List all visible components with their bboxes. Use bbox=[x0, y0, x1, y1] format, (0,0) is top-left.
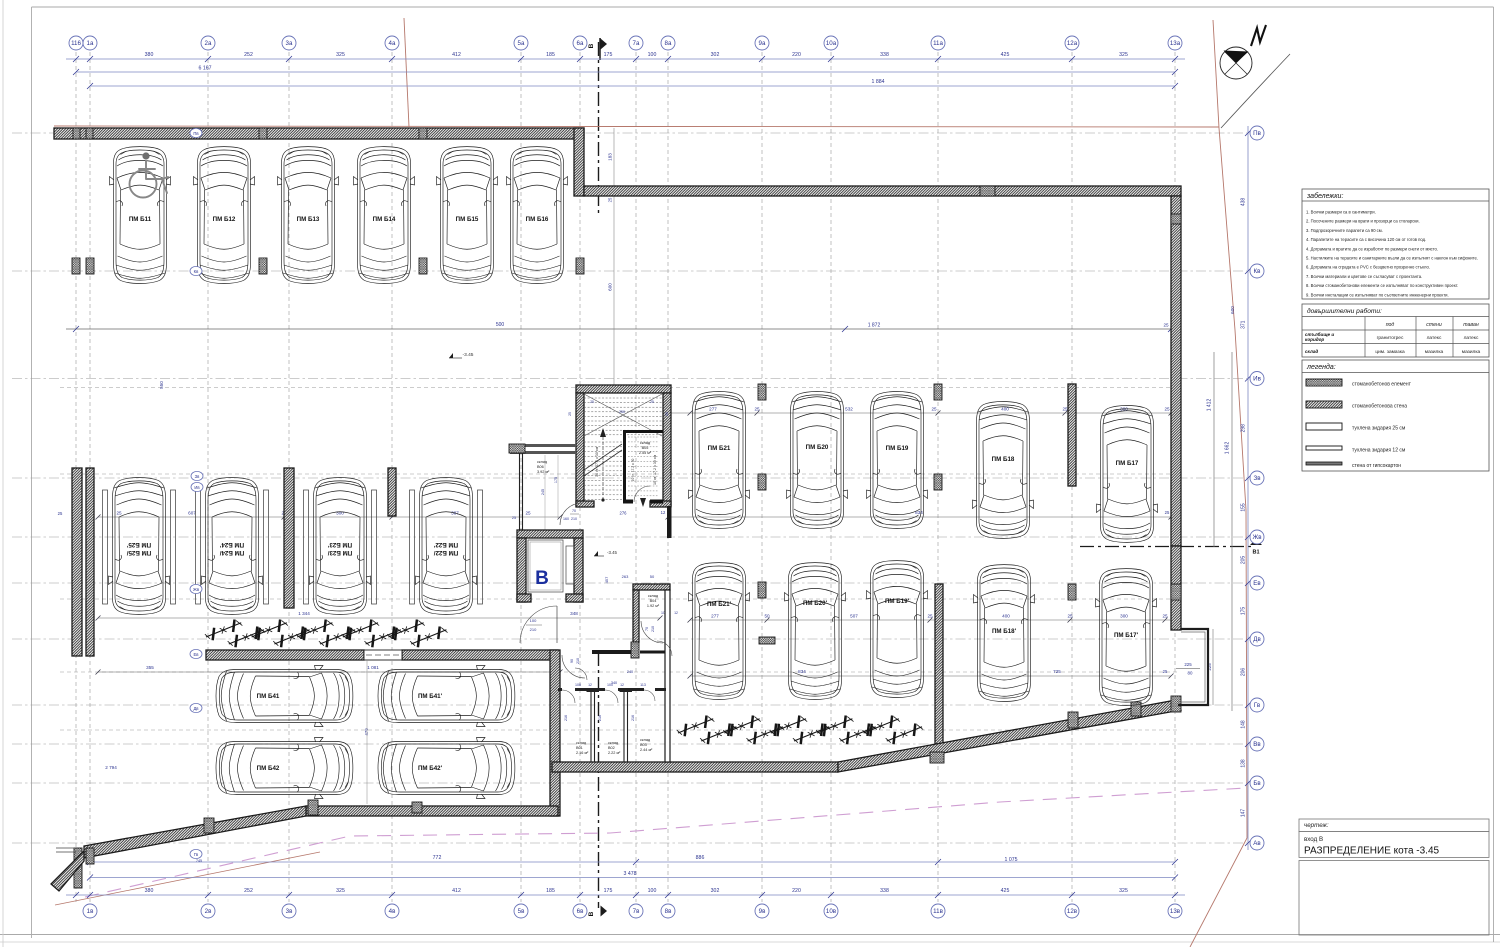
svg-text:ПМ Б17': ПМ Б17' bbox=[1114, 632, 1139, 639]
svg-text:252: 252 bbox=[244, 888, 253, 894]
svg-text:25: 25 bbox=[525, 511, 531, 516]
svg-text:Дв: Дв bbox=[1253, 636, 1261, 643]
svg-text:70: 70 bbox=[645, 627, 649, 631]
svg-text:ПМ Б25/: ПМ Б25/ bbox=[127, 549, 152, 556]
svg-text:210: 210 bbox=[571, 517, 577, 521]
svg-text:ПМ Б17: ПМ Б17 bbox=[1116, 460, 1139, 467]
svg-text:479: 479 bbox=[364, 728, 369, 736]
svg-text:412: 412 bbox=[452, 52, 461, 58]
svg-text:2 794: 2 794 bbox=[105, 765, 117, 770]
svg-text:7в: 7в bbox=[633, 908, 640, 915]
svg-text:4. Парапетите на терасите са с: 4. Парапетите на терасите са с височина … bbox=[1306, 237, 1426, 242]
svg-text:6. Дограмата на сградата е PVC: 6. Дограмата на сградата е PVC с безцвет… bbox=[1306, 265, 1430, 270]
svg-text:2.44 м²: 2.44 м² bbox=[640, 748, 653, 752]
svg-text:25: 25 bbox=[931, 407, 937, 412]
svg-text:220: 220 bbox=[792, 52, 801, 58]
svg-text:вход В: вход В bbox=[1304, 836, 1323, 843]
svg-text:латекс: латекс bbox=[1464, 336, 1479, 341]
svg-text:2. Посочените размери на врати: 2. Посочените размери на врати и прозорц… bbox=[1306, 219, 1420, 224]
svg-text:Кв: Кв bbox=[1254, 268, 1262, 275]
svg-text:3.92 м²: 3.92 м² bbox=[537, 470, 550, 474]
svg-text:210: 210 bbox=[576, 658, 580, 664]
svg-text:склад: склад bbox=[576, 741, 587, 745]
svg-text:600: 600 bbox=[1230, 306, 1235, 314]
svg-text:13в: 13в bbox=[1170, 908, 1181, 915]
svg-text:1.92 м²: 1.92 м² bbox=[647, 604, 660, 608]
svg-text:175: 175 bbox=[554, 477, 558, 483]
svg-text:ПМ Б24': ПМ Б24' bbox=[219, 541, 244, 548]
svg-text:ПМ Б16: ПМ Б16 bbox=[526, 216, 549, 223]
svg-text:607: 607 bbox=[188, 511, 196, 516]
svg-text:1 344: 1 344 bbox=[298, 611, 310, 616]
svg-text:325: 325 bbox=[1119, 52, 1128, 58]
svg-text:10 ст. 17.2 х 30: 10 ст. 17.2 х 30 bbox=[631, 458, 635, 481]
svg-text:ПМ Б19': ПМ Б19' bbox=[885, 598, 910, 605]
svg-text:склад: склад bbox=[1305, 349, 1318, 354]
svg-text:438: 438 bbox=[1241, 198, 1247, 207]
svg-text:ПМ Б12: ПМ Б12 bbox=[213, 216, 236, 223]
svg-text:6в: 6в bbox=[577, 908, 584, 915]
svg-text:252: 252 bbox=[244, 52, 253, 58]
svg-text:Ив: Ив bbox=[194, 485, 200, 490]
svg-text:263: 263 bbox=[622, 574, 629, 579]
svg-text:100: 100 bbox=[575, 683, 581, 687]
svg-text:Ев: Ев bbox=[1253, 580, 1261, 587]
svg-text:таван: таван bbox=[1463, 322, 1479, 328]
svg-text:250: 250 bbox=[619, 410, 625, 414]
svg-text:ПМ Б42: ПМ Б42 bbox=[257, 765, 280, 772]
svg-text:302: 302 bbox=[711, 888, 720, 894]
svg-text:4в: 4в bbox=[389, 908, 396, 915]
svg-text:9а: 9а bbox=[759, 40, 766, 47]
svg-text:ПМ Б18: ПМ Б18 bbox=[992, 456, 1015, 463]
svg-text:стоманобетонова стена: стоманобетонова стена bbox=[1352, 404, 1407, 410]
svg-text:B02: B02 bbox=[608, 746, 615, 750]
svg-text:532: 532 bbox=[845, 407, 853, 412]
svg-text:Зв: Зв bbox=[195, 474, 201, 479]
svg-text:B05: B05 bbox=[642, 446, 649, 450]
svg-text:6а: 6а bbox=[577, 40, 584, 47]
svg-text:3. Подпрозоречните парапети са: 3. Подпрозоречните парапети са 90 см. bbox=[1306, 228, 1383, 233]
svg-text:склад: склад bbox=[648, 594, 659, 598]
svg-text:355: 355 bbox=[146, 665, 154, 670]
svg-text:Бв: Бв bbox=[1253, 780, 1261, 787]
svg-text:ПМ Б25': ПМ Б25' bbox=[126, 541, 151, 548]
svg-text:2а: 2а bbox=[205, 40, 212, 47]
svg-text:725: 725 bbox=[1053, 669, 1061, 674]
svg-text:1 075: 1 075 bbox=[1005, 857, 1018, 863]
svg-text:ПМ Б21: ПМ Б21 bbox=[708, 445, 731, 452]
svg-text:348: 348 bbox=[570, 611, 578, 616]
svg-text:9в: 9в bbox=[759, 908, 766, 915]
svg-text:507: 507 bbox=[850, 614, 858, 619]
svg-text:80: 80 bbox=[1188, 671, 1193, 676]
svg-text:185: 185 bbox=[546, 888, 555, 894]
svg-text:ПМ Б41: ПМ Б41 bbox=[257, 693, 280, 700]
svg-text:325: 325 bbox=[1119, 888, 1128, 894]
svg-text:ПМ Б23/: ПМ Б23/ bbox=[328, 549, 353, 556]
svg-text:147: 147 bbox=[1241, 809, 1247, 818]
svg-text:9. Всички инсталации се изпълн: 9. Всички инсталации се изпълняват по съ… bbox=[1306, 292, 1449, 297]
svg-text:склад: склад bbox=[640, 738, 651, 742]
svg-text:ПМ Б19: ПМ Б19 bbox=[886, 445, 909, 452]
svg-text:коридор: коридор bbox=[1305, 337, 1324, 342]
svg-text:6 167: 6 167 bbox=[199, 66, 212, 72]
svg-text:довършителни работи:: довършителни работи: bbox=[1307, 307, 1382, 315]
svg-text:ПМ Б18': ПМ Б18' bbox=[992, 628, 1017, 635]
svg-text:Ев: Ев bbox=[193, 652, 199, 657]
svg-text:300: 300 bbox=[1120, 614, 1128, 619]
svg-text:138: 138 bbox=[1241, 759, 1247, 768]
svg-text:ПМ Б22': ПМ Б22' bbox=[433, 541, 458, 548]
svg-text:склад: склад bbox=[537, 460, 548, 464]
svg-text:886: 886 bbox=[696, 855, 705, 861]
svg-text:276: 276 bbox=[620, 511, 628, 516]
svg-text:338: 338 bbox=[880, 888, 889, 894]
svg-text:5. Настилките на терасите и са: 5. Настилките на терасите и санитарните … bbox=[1306, 256, 1478, 261]
svg-text:Вв: Вв bbox=[1253, 741, 1261, 748]
svg-text:легенда:: легенда: bbox=[1306, 363, 1336, 371]
svg-text:12а: 12а bbox=[1067, 40, 1078, 47]
svg-text:ПМ Б23': ПМ Б23' bbox=[327, 541, 352, 548]
svg-text:25: 25 bbox=[58, 511, 63, 516]
svg-text:Гв: Гв bbox=[1254, 702, 1261, 709]
svg-text:7а: 7а bbox=[633, 40, 640, 47]
svg-text:латекс: латекс bbox=[1427, 336, 1442, 341]
svg-text:В: В bbox=[588, 911, 595, 916]
svg-text:мазилка: мазилка bbox=[1425, 350, 1444, 355]
svg-text:11в: 11в bbox=[933, 908, 943, 915]
svg-text:155: 155 bbox=[1241, 503, 1247, 512]
svg-text:цим. замазка: цим. замазка bbox=[1375, 350, 1405, 355]
svg-text:склад: склад bbox=[640, 441, 651, 445]
svg-text:12: 12 bbox=[674, 611, 678, 615]
svg-text:245: 245 bbox=[541, 489, 545, 495]
svg-text:B03: B03 bbox=[640, 743, 647, 747]
svg-text:175: 175 bbox=[604, 52, 613, 58]
svg-text:10 ст. 17.2 х 30 см: 10 ст. 17.2 х 30 см bbox=[653, 454, 657, 485]
svg-text:1. Всички размери са в сантиме: 1. Всички размери са в сантиметри. bbox=[1306, 210, 1376, 215]
svg-text:тухлена зидария 25 см: тухлена зидария 25 см bbox=[1352, 426, 1406, 432]
svg-text:чертеж:: чертеж: bbox=[1304, 822, 1329, 829]
svg-text:12: 12 bbox=[620, 683, 624, 687]
svg-text:50: 50 bbox=[650, 574, 655, 579]
svg-text:500: 500 bbox=[496, 322, 505, 328]
svg-text:2в: 2в bbox=[205, 908, 212, 915]
svg-text:Жв: Жв bbox=[1252, 534, 1262, 541]
svg-text:100: 100 bbox=[530, 618, 537, 623]
svg-text:277: 277 bbox=[709, 407, 717, 412]
svg-text:-3.45: -3.45 bbox=[607, 550, 618, 555]
svg-text:мазилка: мазилка bbox=[1462, 350, 1481, 355]
svg-text:ПМ Б20': ПМ Б20' bbox=[803, 600, 828, 607]
svg-text:834: 834 bbox=[798, 669, 806, 674]
svg-text:-3.45: -3.45 bbox=[463, 352, 474, 358]
svg-text:ПМ Б15: ПМ Б15 bbox=[456, 216, 479, 223]
svg-text:206: 206 bbox=[1241, 668, 1247, 677]
svg-text:ПМ Б21': ПМ Б21' bbox=[707, 601, 732, 608]
svg-text:10а: 10а bbox=[826, 40, 837, 47]
svg-text:100: 100 bbox=[648, 888, 657, 894]
svg-text:3 478: 3 478 bbox=[624, 871, 637, 877]
svg-text:гранитогрес: гранитогрес bbox=[1377, 336, 1404, 341]
svg-text:Дв: Дв bbox=[193, 706, 199, 711]
svg-text:216: 216 bbox=[564, 715, 568, 721]
svg-text:стена от гипсокартон: стена от гипсокартон bbox=[1352, 463, 1401, 469]
svg-text:25: 25 bbox=[1163, 323, 1169, 328]
svg-text:216: 216 bbox=[631, 715, 635, 721]
svg-text:412: 412 bbox=[452, 888, 461, 894]
svg-text:8в: 8в bbox=[665, 908, 672, 915]
svg-text:1 662: 1 662 bbox=[1225, 442, 1231, 455]
svg-text:116: 116 bbox=[71, 40, 81, 47]
svg-text:Пв: Пв bbox=[193, 131, 199, 136]
svg-text:ПМ Б24/: ПМ Б24/ bbox=[220, 549, 245, 556]
svg-text:3в: 3в bbox=[286, 908, 293, 915]
svg-text:100: 100 bbox=[648, 52, 657, 58]
svg-text:340: 340 bbox=[611, 681, 617, 685]
svg-text:стени: стени bbox=[1426, 322, 1442, 328]
svg-text:25: 25 bbox=[608, 197, 613, 202]
svg-text:ПМ Б20: ПМ Б20 bbox=[806, 444, 829, 451]
svg-text:2.22 м²: 2.22 м² bbox=[608, 751, 621, 755]
svg-text:ПМ Б13: ПМ Б13 bbox=[297, 216, 320, 223]
svg-text:25: 25 bbox=[590, 400, 594, 404]
svg-text:216: 216 bbox=[598, 715, 602, 721]
svg-text:1в: 1в bbox=[87, 908, 94, 915]
svg-text:4. Дограмата и вратите да се и: 4. Дограмата и вратите да се изработят п… bbox=[1306, 246, 1438, 251]
svg-text:Жв: Жв bbox=[193, 587, 200, 592]
svg-text:550: 550 bbox=[159, 381, 164, 389]
svg-text:12в: 12в bbox=[1067, 908, 1078, 915]
svg-text:338: 338 bbox=[880, 52, 889, 58]
svg-text:1 884: 1 884 bbox=[872, 79, 885, 85]
svg-text:185: 185 bbox=[546, 52, 555, 58]
svg-text:25: 25 bbox=[665, 412, 669, 416]
svg-text:13а: 13а bbox=[1170, 40, 1181, 47]
svg-text:220: 220 bbox=[792, 888, 801, 894]
svg-text:183: 183 bbox=[608, 153, 613, 161]
svg-text:2.16 м²: 2.16 м² bbox=[576, 751, 589, 755]
svg-text:371: 371 bbox=[1241, 320, 1247, 329]
svg-text:25: 25 bbox=[116, 511, 122, 516]
svg-text:забележки:: забележки: bbox=[1306, 192, 1343, 200]
svg-text:Ав: Ав bbox=[1253, 840, 1261, 847]
svg-text:B06: B06 bbox=[537, 465, 544, 469]
svg-text:25: 25 bbox=[512, 516, 516, 520]
svg-text:РАЗПРЕДЕЛЕНИЕ кота -3.45: РАЗПРЕДЕЛЕНИЕ кота -3.45 bbox=[1304, 846, 1440, 857]
svg-text:ПМ Б11: ПМ Б11 bbox=[129, 216, 152, 223]
svg-text:25: 25 bbox=[1165, 510, 1170, 515]
svg-text:В1: В1 bbox=[1252, 550, 1259, 556]
svg-text:1а: 1а bbox=[87, 40, 94, 47]
svg-text:175: 175 bbox=[1241, 607, 1247, 616]
svg-text:1 081: 1 081 bbox=[367, 665, 379, 670]
svg-text:10в: 10в bbox=[826, 908, 837, 915]
svg-text:5в: 5в bbox=[518, 908, 525, 915]
svg-text:600: 600 bbox=[608, 283, 613, 291]
svg-text:148: 148 bbox=[1241, 720, 1247, 729]
svg-text:В: В bbox=[535, 568, 549, 589]
svg-text:325: 325 bbox=[336, 52, 345, 58]
svg-text:2.55 м²: 2.55 м² bbox=[639, 451, 652, 455]
svg-text:под: под bbox=[1386, 322, 1395, 328]
svg-text:12: 12 bbox=[661, 510, 666, 515]
svg-text:25: 25 bbox=[1163, 669, 1168, 674]
svg-text:772: 772 bbox=[433, 855, 442, 861]
svg-text:325: 325 bbox=[336, 888, 345, 894]
svg-text:210: 210 bbox=[530, 627, 537, 632]
svg-text:745: 745 bbox=[196, 859, 202, 863]
svg-text:тухлена зидария 12 см: тухлена зидария 12 см bbox=[1352, 448, 1406, 454]
svg-text:70: 70 bbox=[572, 509, 576, 513]
svg-text:11а: 11а bbox=[933, 40, 943, 47]
svg-text:25: 25 bbox=[1164, 407, 1170, 412]
svg-text:16 ст. 17.2 х 30 см: 16 ст. 17.2 х 30 см bbox=[595, 446, 599, 477]
svg-text:Ив: Ив bbox=[1253, 376, 1261, 383]
svg-text:160: 160 bbox=[563, 517, 569, 521]
svg-text:380: 380 bbox=[145, 888, 154, 894]
svg-text:425: 425 bbox=[1001, 888, 1010, 894]
svg-text:380: 380 bbox=[145, 52, 154, 58]
svg-text:8а: 8а bbox=[665, 40, 672, 47]
svg-text:175: 175 bbox=[604, 888, 613, 894]
svg-text:3а: 3а bbox=[286, 40, 293, 47]
svg-text:Зв: Зв bbox=[1253, 475, 1261, 482]
svg-text:300: 300 bbox=[336, 511, 344, 516]
svg-text:90: 90 bbox=[570, 659, 574, 663]
svg-text:298: 298 bbox=[1241, 424, 1247, 433]
svg-text:ПМ Б42': ПМ Б42' bbox=[418, 765, 443, 772]
svg-text:113: 113 bbox=[640, 683, 646, 687]
svg-text:стоманобетонов елемент: стоманобетонов елемент bbox=[1352, 382, 1412, 388]
svg-text:7. Всички материали и цветове: 7. Всички материали и цветове се съгласу… bbox=[1306, 274, 1422, 279]
svg-text:277: 277 bbox=[711, 614, 719, 619]
svg-text:205: 205 bbox=[1241, 556, 1247, 565]
svg-text:225: 225 bbox=[1184, 662, 1192, 667]
svg-text:Кв: Кв bbox=[194, 269, 199, 274]
svg-text:25: 25 bbox=[568, 412, 572, 416]
svg-text:210: 210 bbox=[651, 626, 655, 632]
svg-text:1 412: 1 412 bbox=[1207, 399, 1213, 412]
svg-text:457: 457 bbox=[604, 576, 609, 583]
svg-text:4а: 4а bbox=[389, 40, 396, 47]
svg-text:400: 400 bbox=[1002, 614, 1010, 619]
svg-text:425: 425 bbox=[1001, 52, 1010, 58]
svg-text:12: 12 bbox=[588, 683, 592, 687]
svg-text:1 872: 1 872 bbox=[868, 323, 881, 329]
svg-text:Пв: Пв bbox=[1253, 130, 1261, 137]
svg-text:240: 240 bbox=[627, 670, 633, 674]
svg-text:ПМ Б41': ПМ Б41' bbox=[418, 693, 443, 700]
svg-text:В: В bbox=[588, 43, 595, 48]
svg-text:8. Всички стоманобетонови елем: 8. Всички стоманобетонови елементи се из… bbox=[1306, 283, 1458, 288]
svg-text:ПМ Б14: ПМ Б14 bbox=[373, 216, 396, 223]
svg-text:25: 25 bbox=[650, 400, 654, 404]
svg-text:B04: B04 bbox=[650, 599, 657, 603]
svg-text:склад: склад bbox=[608, 741, 619, 745]
svg-text:302: 302 bbox=[711, 52, 720, 58]
svg-text:5а: 5а bbox=[518, 40, 525, 47]
svg-text:ПМ Б22/: ПМ Б22/ bbox=[434, 549, 459, 556]
svg-text:B01: B01 bbox=[576, 746, 583, 750]
